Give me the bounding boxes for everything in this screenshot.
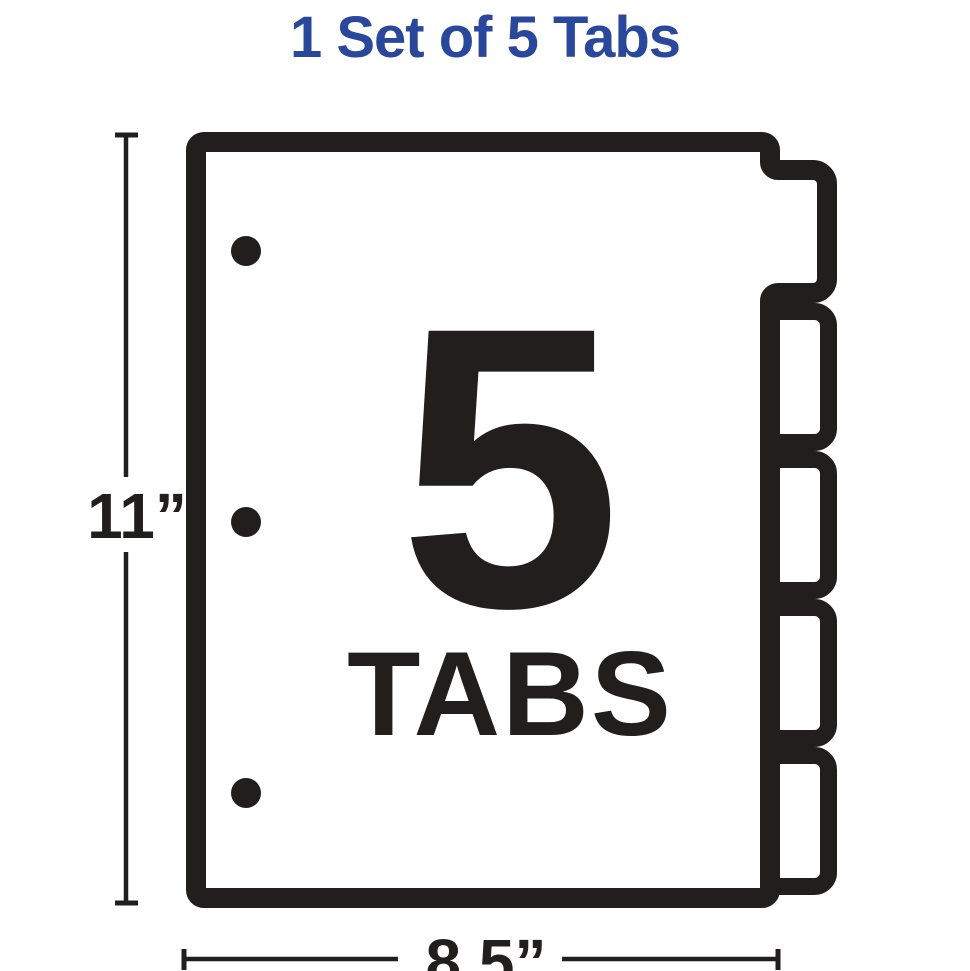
punch-hole-3 <box>231 778 261 808</box>
width-dimension-label: 8.5” <box>386 930 586 971</box>
tab-count-caption: TABS <box>310 634 710 754</box>
product-illustration: 1 Set of 5 Tabs 5 TABS 11” 8. <box>0 0 970 971</box>
height-dimension-label: 11” <box>62 484 212 548</box>
punch-hole-1 <box>231 236 261 266</box>
punch-hole-2 <box>231 507 261 537</box>
tab-count-number: 5 <box>310 268 710 668</box>
